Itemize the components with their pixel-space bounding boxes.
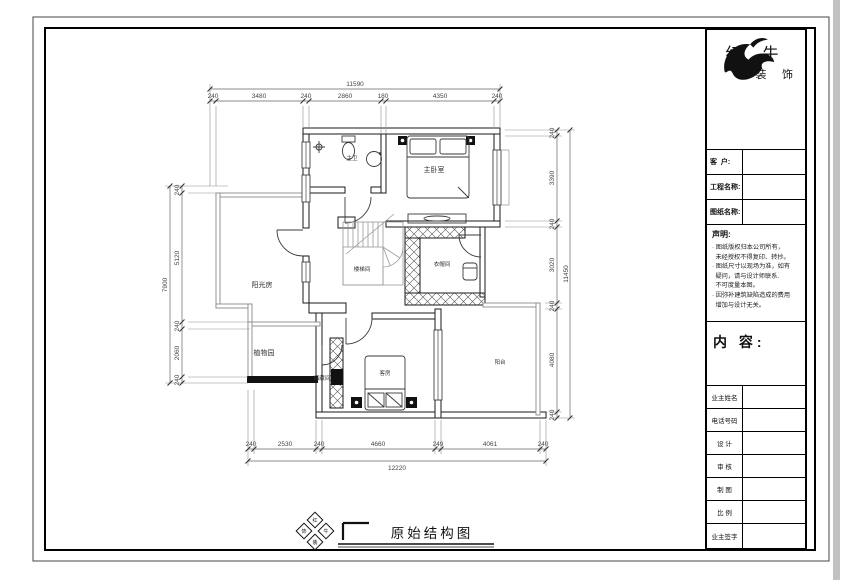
field-row-customer: 客 户: [707,150,805,175]
svg-text:4080: 4080 [549,352,556,367]
company-logo: 红 牛 装 饰 [707,30,805,150]
svg-text:2530: 2530 [278,441,293,448]
info-value [743,478,805,500]
info-label: 设 计 [707,432,743,454]
info-value [743,386,805,408]
svg-text:240: 240 [246,441,257,448]
title-block: 红 牛 装 饰 客 户: 工程名称: 图纸名称: 声明: · 图纸版权归本公司所… [705,28,807,550]
svg-text:240: 240 [549,300,556,311]
svg-text:240: 240 [492,93,503,100]
svg-text:240: 240 [549,409,556,420]
room-label-stairwell: 楼梯间 [354,265,371,273]
info-row-owner-signature: 业主签字 [707,524,805,548]
svg-text:240: 240 [174,374,181,385]
statement-line: · 图纸版权归本公司所有， [712,243,802,253]
info-row-phone: 电话号码 [707,409,805,432]
guestroom-door [346,318,372,344]
info-label: 业主签字 [707,524,743,548]
room-label-guestroom: 客房 [379,369,391,377]
plantroom-south-wall [247,376,318,383]
room-label-storage: 储藏间 [314,374,331,382]
info-label: 业主姓名 [707,386,743,408]
content-label: 内 容: [707,322,805,386]
ceiling-lamp-icon [313,141,325,153]
svg-text:11590: 11590 [346,81,364,88]
statement-heading: 声明: [712,229,802,240]
svg-text:240: 240 [538,441,549,448]
svg-text:5120: 5120 [174,250,181,265]
svg-text:240: 240 [174,320,181,331]
field-value [743,150,805,174]
svg-text:4350: 4350 [433,93,448,100]
svg-text:牛: 牛 [323,528,328,535]
room-label-sunroom: 阳光房 [252,280,273,289]
corner-bracket-icon [343,523,369,540]
storage-cabinet [331,369,343,385]
room-label-master-bedroom: 主卧室 [424,165,445,174]
info-label: 审 核 [707,455,743,477]
info-value [743,524,805,548]
svg-text:4660: 4660 [371,441,386,448]
info-label: 比 例 [707,501,743,523]
statement-line: 不可度量本图。 [712,281,802,291]
svg-text:2060: 2060 [174,345,181,360]
drawing-title: 原始结构图 [391,526,474,541]
info-row-review: 审 核 [707,455,805,478]
svg-text:4061: 4061 [483,441,498,448]
svg-text:装: 装 [312,539,317,546]
room-label-plantroom: 植物园 [254,348,275,357]
guest-bed [365,356,405,410]
svg-text:12220: 12220 [388,465,406,472]
svg-text:180: 180 [378,93,389,100]
info-value [743,432,805,454]
svg-text:240: 240 [549,127,556,138]
statement-section: 声明: · 图纸版权归本公司所有， 未经授权不得复印、转抄。 · 图纸尺寸以现场… [707,225,805,322]
info-label: 制 图 [707,478,743,500]
field-value [743,175,805,199]
svg-text:11450: 11450 [563,265,570,283]
info-value [743,409,805,431]
svg-text:2860: 2860 [338,93,353,100]
page-edge-strip [833,0,840,580]
field-label: 工程名称: [707,175,743,199]
field-row-project-name: 工程名称: [707,175,805,200]
svg-text:3020: 3020 [549,257,556,272]
statement-line: 疑问，请与设计师联系. [712,272,802,282]
room-label-balcony: 阳台 [494,358,506,366]
info-value [743,455,805,477]
info-row-owner-name: 业主姓名 [707,386,805,409]
field-row-drawing-name: 图纸名称: [707,200,805,225]
info-label: 电话号码 [707,409,743,431]
closet-stool [463,263,477,280]
svg-text:240: 240 [208,93,219,100]
footer: 红 牛 装 饰 原始结构图 [296,512,494,550]
statement-line: · 因弥补建筑缺陷造成的费用 [712,291,802,301]
info-row-design: 设 计 [707,432,805,455]
field-value [743,200,805,224]
statement-line: · 图纸尺寸以现场为准，如有 [712,262,802,272]
bull-logo-icon [707,30,787,86]
sheet-border-inner [45,28,815,550]
svg-text:240: 240 [174,184,181,195]
svg-text:3480: 3480 [252,93,267,100]
dimension-left: 240 5120 240 2060 240 7900 [162,184,250,386]
svg-text:249: 249 [433,441,444,448]
svg-text:红: 红 [312,517,317,524]
sunroom-door [277,230,303,256]
field-label: 客 户: [707,150,743,174]
statement-line: 未经授权不得复印、转抄。 [712,253,802,263]
sink [367,152,382,167]
svg-text:240: 240 [301,93,312,100]
info-value [743,501,805,523]
field-label: 图纸名称: [707,200,743,224]
room-label-cloakroom: 衣帽间 [434,260,451,268]
svg-text:饰: 饰 [301,528,306,535]
room-label-master-bath: 主卫 [346,154,358,162]
statement-line: 增加与设计无关。 [712,301,802,311]
info-row-drafting: 制 图 [707,478,805,501]
stamp-icon: 红 牛 装 饰 [296,512,334,550]
svg-text:7900: 7900 [162,277,169,292]
drawing-sheet: 主卫 主卧室 楼梯间 衣帽间 阳光房 植物园 储藏间 客房 阳台 11590 2… [0,0,860,580]
svg-text:3390: 3390 [549,170,556,185]
svg-text:240: 240 [314,441,325,448]
svg-text:240: 240 [549,218,556,229]
info-row-scale: 比 例 [707,501,805,524]
